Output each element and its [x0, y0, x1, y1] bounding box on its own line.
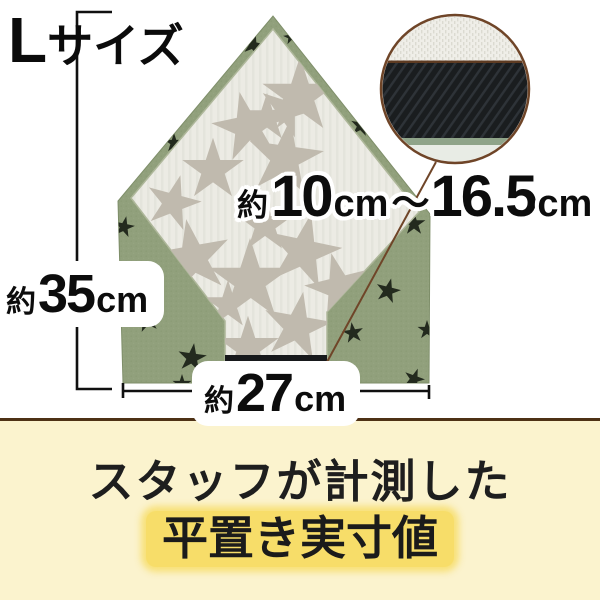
- height-unit: cm: [96, 282, 148, 318]
- approx-prefix: 約: [204, 387, 234, 417]
- height-value: 35: [38, 267, 94, 321]
- approx-prefix: 約: [237, 190, 268, 221]
- band-min-unit: cm: [334, 185, 389, 223]
- approx-prefix: 約: [6, 288, 36, 318]
- width-unit: cm: [294, 381, 346, 417]
- band-min-value: 10: [271, 168, 332, 226]
- band-width-measurement: 約 10 cm 〜 16.5 cm: [237, 168, 594, 226]
- width-measurement: 約 27 cm: [192, 361, 360, 426]
- width-value: 27: [236, 366, 292, 420]
- band-max-unit: cm: [537, 185, 592, 223]
- callout-seam-line: [379, 61, 531, 64]
- size-letter: L: [8, 8, 45, 72]
- footer-caption: スタッフが計測した: [0, 457, 600, 507]
- band-max-value: 16.5: [430, 168, 535, 226]
- highlighted-text: 平置き実寸値: [146, 511, 454, 568]
- height-measurement: 約 35 cm: [0, 261, 164, 327]
- product-size-diagram: L サイズ 約 10 cm 〜 16.5 cm 約 35 cm 約 27 cm …: [0, 0, 600, 600]
- range-tilde: 〜: [391, 185, 429, 223]
- fabric-detail-callout: [379, 13, 531, 165]
- footer-highlight-line: 平置き実寸値: [0, 511, 600, 568]
- callout-elastic-band: [379, 63, 531, 138]
- size-text: サイズ: [47, 23, 184, 69]
- size-label: L サイズ: [8, 8, 184, 72]
- footer-banner: スタッフが計測した 平置き実寸値: [0, 418, 600, 600]
